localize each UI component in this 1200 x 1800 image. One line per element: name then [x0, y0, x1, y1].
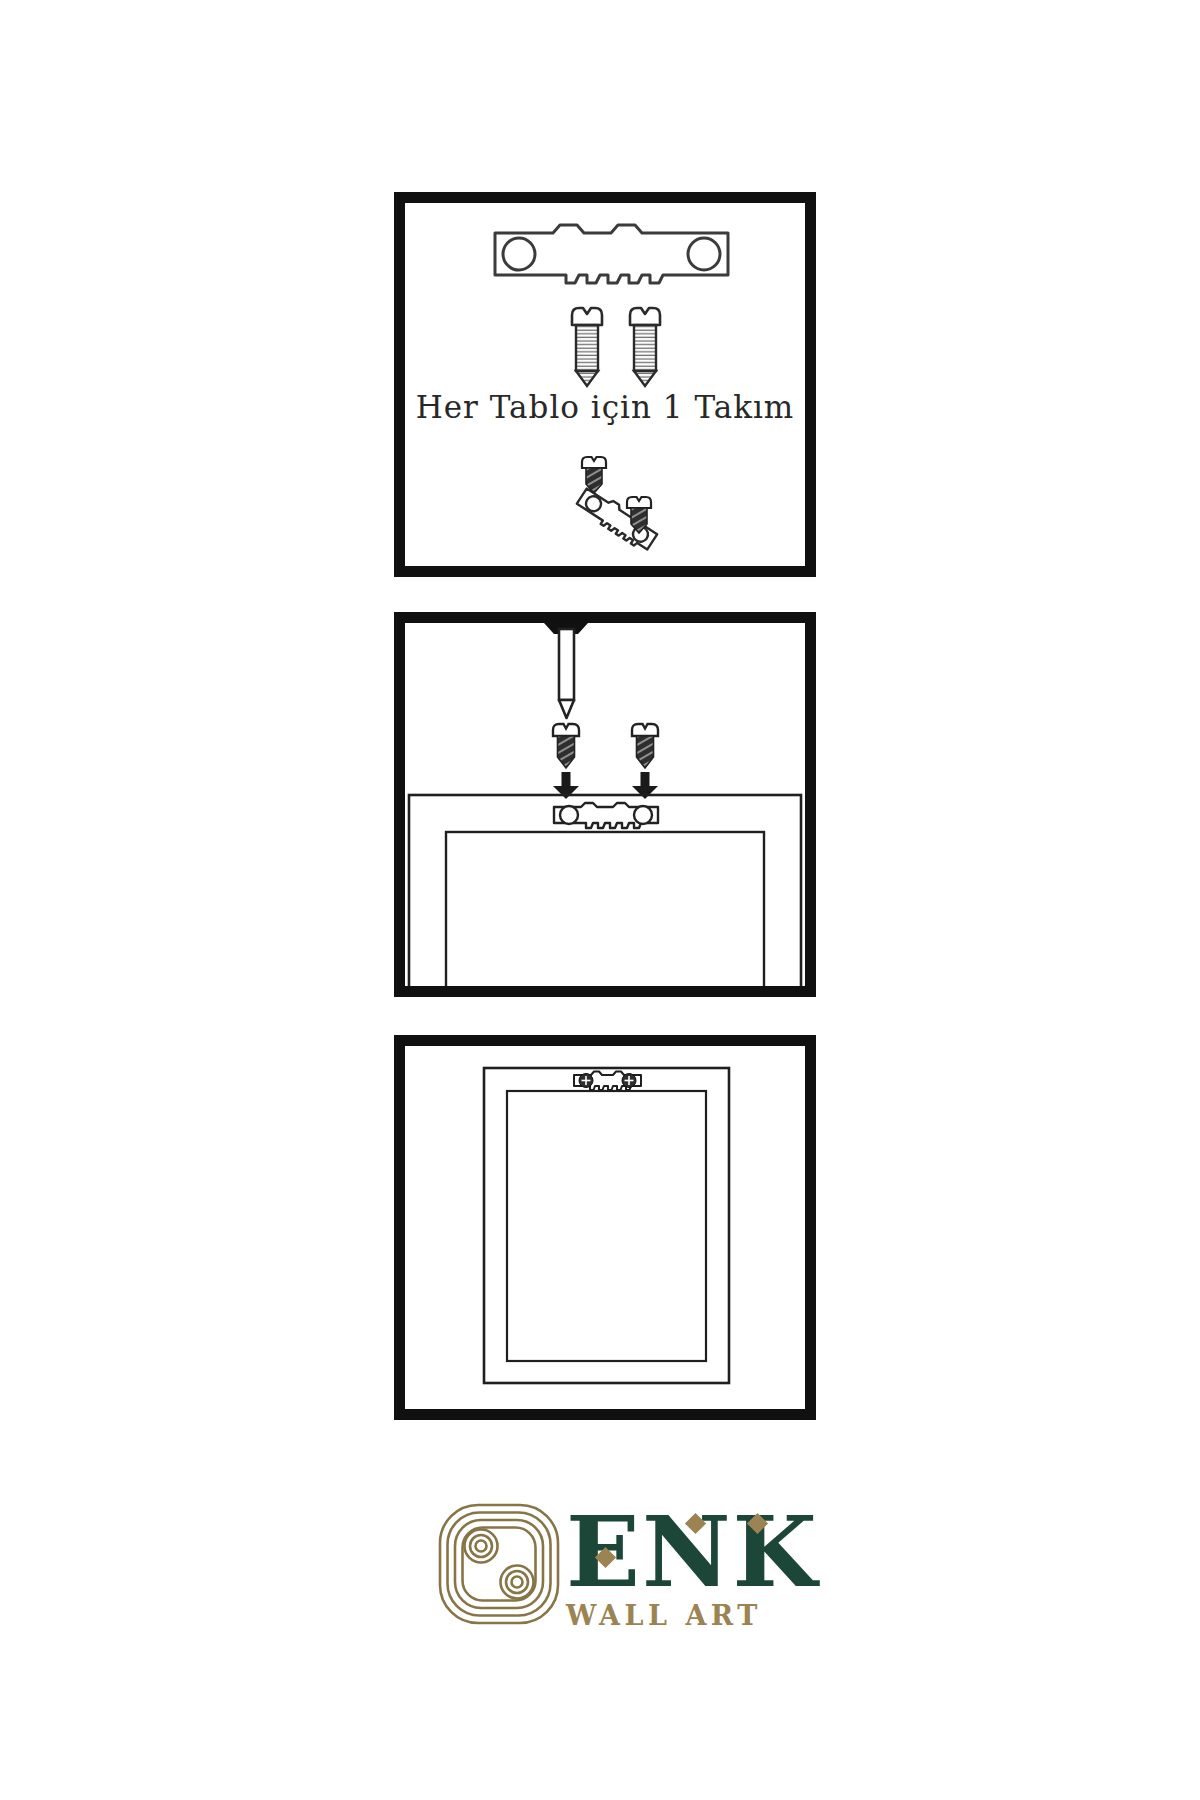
step1-caption: Her Tablo için 1 Takım [394, 389, 816, 425]
phillips-screw-head-icon [579, 1074, 593, 1088]
step1-panel: Her Tablo için 1 Takım [394, 192, 816, 577]
brand-logo: ENK WALL ART [437, 1498, 797, 1638]
wall-mounting-illustration [405, 623, 807, 986]
screw-icon [572, 308, 602, 386]
step2-panel [394, 612, 816, 997]
step3-panel [394, 1035, 816, 1420]
screw-dark-icon [632, 724, 658, 768]
brand-text-block: ENK WALL ART [566, 1512, 796, 1631]
screw-dark-icon [553, 724, 579, 768]
screw-icon [630, 308, 660, 386]
sawtooth-hanger-icon [554, 803, 658, 828]
enk-knot-logo-icon [437, 1500, 561, 1628]
poster-canvas: Her Tablo için 1 Takım [0, 0, 1200, 1800]
frame-front-outline [484, 1068, 729, 1383]
hanging-kit-illustration [405, 203, 805, 566]
nail-icon [544, 623, 588, 718]
sawtooth-hanger-icon [574, 1072, 641, 1091]
hung-frame-illustration [405, 1046, 803, 1411]
screw-dark-icon [582, 457, 606, 493]
sawtooth-hanger-icon [495, 225, 728, 283]
phillips-screw-head-icon [622, 1074, 636, 1088]
